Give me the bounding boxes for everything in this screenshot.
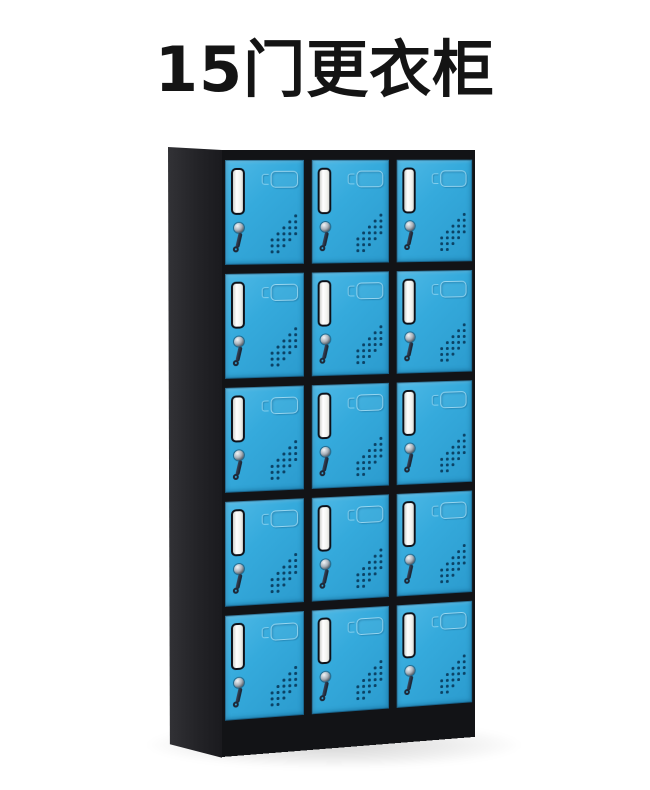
vent-dot	[446, 242, 448, 245]
vent-dot	[288, 351, 291, 354]
vent-dot	[440, 236, 442, 239]
handle-recess	[271, 509, 299, 527]
vent-dot	[457, 672, 459, 675]
vent-dot	[368, 337, 370, 340]
locker-door	[397, 490, 473, 596]
locker-door	[225, 160, 304, 265]
vent-dot	[294, 458, 297, 461]
vent-dot	[288, 559, 291, 562]
vent-dot	[294, 672, 297, 675]
handle-tab	[348, 286, 355, 297]
vent-dot	[457, 666, 459, 669]
vent-dot	[446, 673, 448, 676]
vent-dot	[446, 452, 448, 455]
vent-dot	[288, 446, 291, 449]
vent-dot	[277, 465, 280, 468]
vent-holes	[354, 319, 385, 367]
vent-dot	[362, 467, 364, 470]
handle-recess	[440, 391, 466, 408]
vent-dot	[356, 579, 358, 582]
vent-dot	[356, 355, 358, 358]
locker-door	[225, 273, 304, 379]
vent-dot	[440, 359, 442, 362]
vent-dot	[452, 353, 454, 356]
vent-dot	[271, 691, 274, 694]
vent-dot	[368, 343, 370, 346]
vent-dot	[271, 471, 274, 474]
vent-dot	[440, 685, 442, 688]
vent-dot	[282, 696, 285, 699]
vent-dot	[271, 358, 274, 361]
handle-recess	[440, 501, 466, 519]
vent-dot	[463, 561, 465, 564]
vent-dot	[457, 347, 459, 350]
vent-dot	[282, 339, 285, 342]
key-icon	[235, 688, 242, 703]
vent-dot	[356, 349, 358, 352]
vent-dot	[362, 249, 364, 252]
key-icon	[235, 233, 242, 248]
vent-holes	[269, 208, 300, 256]
vent-dot	[452, 225, 454, 228]
vent-dot	[463, 654, 465, 657]
vent-dot	[288, 571, 291, 574]
vent-dot	[446, 359, 448, 362]
vent-dot	[294, 440, 297, 443]
vent-dot	[374, 672, 376, 675]
vent-dot	[362, 355, 364, 358]
vent-dot	[379, 225, 381, 228]
vent-dot	[362, 237, 364, 240]
vent-dot	[368, 467, 370, 470]
vent-dot	[294, 232, 297, 235]
lock-icon	[405, 221, 415, 231]
vent-holes	[269, 321, 300, 369]
vent-dot	[288, 458, 291, 461]
vent-dot	[446, 458, 448, 461]
vent-dot	[368, 455, 370, 458]
vent-dot	[457, 219, 459, 222]
handle-recess	[440, 612, 466, 630]
vent-dot	[277, 357, 280, 360]
locker-door	[312, 606, 389, 714]
vent-dot	[277, 685, 280, 688]
label-card	[318, 168, 332, 214]
vent-dot	[463, 329, 465, 332]
vent-dot	[379, 231, 381, 234]
locker-door	[225, 498, 304, 607]
vent-dot	[452, 667, 454, 670]
vent-dot	[362, 579, 364, 582]
vent-dot	[440, 580, 442, 583]
vent-dot	[463, 439, 465, 442]
vent-dot	[446, 248, 448, 251]
handle-recess	[271, 397, 299, 415]
vent-dot	[446, 568, 448, 571]
vent-dot	[362, 473, 364, 476]
key-icon	[235, 574, 242, 589]
vent-dot	[457, 451, 459, 454]
handle-recess	[356, 617, 383, 635]
vent-dot	[271, 590, 274, 593]
vent-dot	[294, 571, 297, 574]
vent-holes	[438, 538, 468, 586]
vent-dot	[356, 243, 358, 246]
key-icon	[322, 457, 329, 472]
vent-dot	[368, 690, 370, 693]
key-icon	[322, 569, 329, 584]
vent-dot	[356, 461, 358, 464]
handle-recess	[271, 284, 299, 301]
locker-door	[397, 380, 473, 485]
vent-dot	[282, 226, 285, 229]
vent-dot	[368, 226, 370, 229]
vent-dot	[368, 561, 370, 564]
key-icon	[407, 564, 414, 579]
vent-dot	[277, 346, 280, 349]
vent-dot	[446, 231, 448, 234]
vent-dot	[294, 553, 297, 556]
lock-icon	[234, 336, 244, 346]
vent-dot	[282, 679, 285, 682]
vent-dot	[374, 349, 376, 352]
vent-dot	[379, 672, 381, 675]
vent-dot	[457, 550, 459, 553]
vent-dot	[446, 580, 448, 583]
key-icon	[407, 342, 414, 357]
vent-dot	[288, 684, 291, 687]
vent-dot	[294, 559, 297, 562]
vent-dot	[277, 578, 280, 581]
vent-dot	[457, 329, 459, 332]
vent-dot	[362, 343, 364, 346]
vent-dot	[463, 213, 465, 216]
vent-dot	[288, 565, 291, 568]
vent-dot	[374, 220, 376, 223]
vent-dot	[374, 331, 376, 334]
vent-dot	[457, 678, 459, 681]
vent-dot	[446, 353, 448, 356]
vent-dot	[294, 333, 297, 336]
handle-tab	[348, 174, 355, 185]
vent-dot	[282, 458, 285, 461]
vent-dot	[271, 578, 274, 581]
lock-icon	[405, 555, 415, 565]
vent-dot	[282, 232, 285, 235]
vent-dot	[282, 238, 285, 241]
vent-dot	[368, 684, 370, 687]
vent-dot	[277, 232, 280, 235]
locker-door	[397, 270, 473, 374]
vent-dot	[440, 464, 442, 467]
vent-dot	[362, 243, 364, 246]
vent-dot	[463, 550, 465, 553]
handle-tab	[348, 622, 355, 633]
vent-dot	[463, 666, 465, 669]
label-card	[318, 392, 332, 439]
handle-recess	[440, 170, 466, 187]
vent-dot	[463, 335, 465, 338]
lock-icon	[321, 671, 331, 682]
lock-icon	[234, 450, 244, 460]
vent-dot	[288, 220, 291, 223]
vent-dot	[362, 679, 364, 682]
vent-dot	[368, 679, 370, 682]
key-icon	[235, 460, 242, 475]
lock-icon	[321, 334, 331, 344]
key-icon	[407, 453, 414, 468]
vent-dot	[463, 341, 465, 344]
vent-dot	[356, 473, 358, 476]
vent-dot	[446, 347, 448, 350]
vent-dot	[452, 446, 454, 449]
vent-dot	[452, 562, 454, 565]
vent-dot	[271, 584, 274, 587]
vent-dot	[379, 325, 381, 328]
vent-dot	[452, 457, 454, 460]
label-card	[231, 623, 245, 671]
vent-dot	[446, 341, 448, 344]
vent-dot	[288, 577, 291, 580]
vent-dot	[463, 544, 465, 547]
label-card	[402, 168, 415, 214]
vent-dot	[362, 349, 364, 352]
vent-dot	[362, 573, 364, 576]
vent-dot	[374, 231, 376, 234]
vent-dot	[446, 679, 448, 682]
vent-dot	[288, 690, 291, 693]
vent-dot	[362, 585, 364, 588]
vent-dot	[294, 226, 297, 229]
vent-dot	[379, 337, 381, 340]
vent-dot	[452, 556, 454, 559]
vent-dot	[452, 242, 454, 245]
vent-dot	[368, 449, 370, 452]
vent-dot	[368, 461, 370, 464]
vent-dot	[282, 691, 285, 694]
vent-dot	[288, 464, 291, 467]
vent-dot	[282, 452, 285, 455]
vent-dot	[362, 691, 364, 694]
vent-dot	[282, 351, 285, 354]
vent-dot	[374, 449, 376, 452]
vent-dot	[356, 691, 358, 694]
vent-holes	[269, 547, 300, 596]
vent-dot	[288, 238, 291, 241]
vent-dot	[294, 565, 297, 568]
vent-dot	[440, 242, 442, 245]
vent-dot	[379, 343, 381, 346]
vent-dot	[440, 353, 442, 356]
locker-door	[225, 385, 304, 492]
vent-dot	[277, 691, 280, 694]
vent-dot	[277, 459, 280, 462]
vent-dot	[440, 569, 442, 572]
vent-dot	[277, 697, 280, 700]
locker-door	[397, 160, 473, 263]
vent-dot	[288, 452, 291, 455]
vent-dot	[374, 561, 376, 564]
vent-dot	[457, 230, 459, 233]
vent-dot	[452, 568, 454, 571]
vent-holes	[438, 317, 468, 364]
vent-dot	[457, 440, 459, 443]
label-card	[318, 280, 332, 327]
vent-dot	[271, 364, 274, 367]
vent-dot	[446, 463, 448, 466]
vent-dot	[282, 345, 285, 348]
lock-icon	[321, 447, 331, 457]
vent-dot	[463, 225, 465, 228]
handle-tab	[262, 174, 269, 185]
lock-icon	[234, 564, 244, 575]
vent-dot	[288, 345, 291, 348]
vent-dot	[288, 339, 291, 342]
vent-dot	[288, 672, 291, 675]
vent-dot	[356, 585, 358, 588]
lock-icon	[234, 677, 244, 688]
vent-dot	[374, 225, 376, 228]
vent-dot	[379, 548, 381, 551]
vent-dot	[374, 443, 376, 446]
vent-holes	[354, 431, 385, 479]
vent-dot	[374, 455, 376, 458]
handle-recess	[356, 394, 383, 412]
handle-tab	[432, 284, 439, 295]
vent-dot	[277, 244, 280, 247]
vent-dot	[452, 684, 454, 687]
vent-dot	[282, 571, 285, 574]
key-icon	[322, 681, 329, 696]
vent-dot	[362, 461, 364, 464]
vent-holes	[438, 428, 468, 476]
vent-dot	[379, 331, 381, 334]
label-card	[318, 505, 332, 552]
vent-dot	[294, 345, 297, 348]
vent-dot	[374, 666, 376, 669]
vent-dot	[277, 703, 280, 706]
vent-dot	[356, 237, 358, 240]
locker-door	[312, 271, 389, 376]
vent-dot	[294, 214, 297, 217]
vent-dot	[463, 451, 465, 454]
handle-tab	[262, 514, 269, 525]
vent-dot	[440, 469, 442, 472]
vent-dot	[368, 355, 370, 358]
vent-dot	[277, 477, 280, 480]
vent-dot	[463, 323, 465, 326]
vent-dot	[368, 231, 370, 234]
key-icon	[322, 344, 329, 359]
vent-dot	[452, 347, 454, 350]
lock-icon	[405, 443, 415, 453]
vent-dot	[277, 572, 280, 575]
vent-dot	[457, 225, 459, 228]
vent-holes	[269, 434, 300, 483]
locker-door	[397, 601, 473, 708]
vent-dot	[277, 363, 280, 366]
vent-dot	[288, 226, 291, 229]
handle-recess	[271, 622, 299, 641]
vent-dot	[463, 230, 465, 233]
label-card	[231, 168, 245, 215]
vent-dot	[271, 477, 274, 480]
vent-dot	[282, 357, 285, 360]
vent-holes	[438, 207, 468, 254]
vent-dot	[452, 574, 454, 577]
handle-tab	[432, 616, 439, 627]
vent-dot	[379, 566, 381, 569]
vent-dot	[271, 352, 274, 355]
handle-tab	[348, 510, 355, 521]
lock-icon	[234, 223, 244, 233]
vent-dot	[379, 678, 381, 681]
vent-dot	[446, 236, 448, 239]
vent-dot	[457, 236, 459, 239]
key-icon	[407, 231, 414, 246]
vent-dot	[294, 666, 297, 669]
handle-tab	[262, 400, 269, 411]
vent-dot	[452, 236, 454, 239]
vent-dot	[282, 244, 285, 247]
vent-dot	[282, 583, 285, 586]
vent-dot	[379, 220, 381, 223]
lock-icon	[321, 559, 331, 569]
handle-recess	[440, 281, 466, 298]
vent-dot	[277, 238, 280, 241]
vent-dot	[440, 458, 442, 461]
label-card	[402, 279, 415, 325]
vent-dot	[457, 446, 459, 449]
key-icon	[322, 232, 329, 247]
vent-dot	[374, 461, 376, 464]
vent-dot	[368, 573, 370, 576]
label-card	[402, 612, 415, 659]
vent-holes	[438, 648, 468, 697]
label-card	[402, 501, 415, 548]
cabinet-side-panel	[168, 147, 222, 759]
vent-dot	[452, 673, 454, 676]
vent-dot	[374, 566, 376, 569]
handle-tab	[262, 287, 269, 298]
lock-icon	[405, 666, 415, 676]
vent-dot	[452, 452, 454, 455]
vent-dot	[362, 455, 364, 458]
lock-icon	[321, 222, 331, 232]
vent-dot	[362, 685, 364, 688]
vent-dot	[457, 457, 459, 460]
lock-icon	[405, 332, 415, 342]
vent-dot	[271, 697, 274, 700]
vent-dot	[379, 666, 381, 669]
handle-recess	[356, 505, 383, 523]
key-icon	[235, 346, 242, 361]
locker-door	[312, 383, 389, 489]
vent-dot	[374, 684, 376, 687]
vent-dot	[282, 685, 285, 688]
vent-dot	[446, 562, 448, 565]
handle-tab	[348, 398, 355, 409]
vent-dot	[452, 230, 454, 233]
vent-dot	[271, 238, 274, 241]
vent-holes	[354, 542, 385, 591]
label-card	[402, 390, 415, 436]
locker-door	[225, 611, 304, 721]
vent-dot	[457, 341, 459, 344]
page-title: 15门更衣柜	[0, 36, 650, 104]
vent-dot	[457, 562, 459, 565]
handle-tab	[262, 627, 269, 638]
